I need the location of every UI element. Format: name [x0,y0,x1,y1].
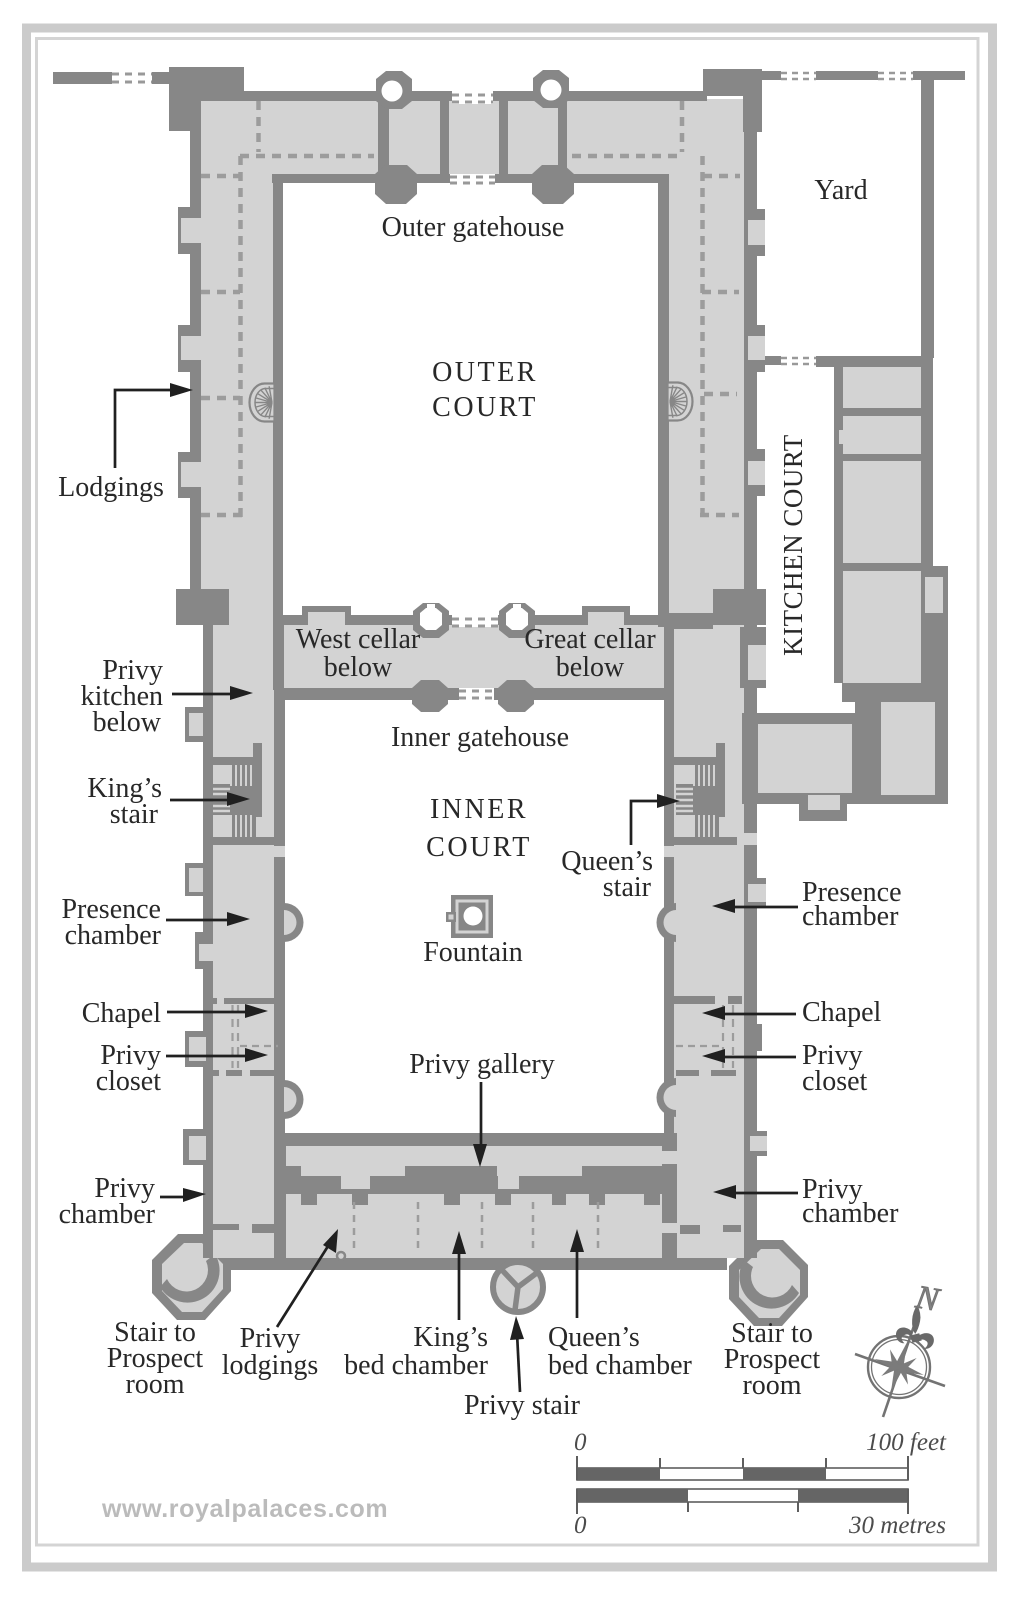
svg-text:below: below [93,707,162,738]
svg-text:lodgings: lodgings [222,1350,318,1381]
svg-text:0: 0 [574,1512,587,1539]
svg-text:West cellar: West cellar [296,624,421,655]
svg-text:stair: stair [603,872,652,903]
svg-text:room: room [742,1370,801,1401]
svg-text:Privy gallery: Privy gallery [409,1049,554,1080]
svg-text:chamber: chamber [65,920,162,951]
svg-text:OUTER: OUTER [432,357,538,388]
svg-text:Great cellar: Great cellar [524,624,656,655]
svg-text:bed chamber: bed chamber [548,1350,692,1381]
svg-text:Inner gatehouse: Inner gatehouse [391,722,569,753]
svg-text:below: below [556,652,625,683]
svg-text:closet: closet [96,1066,162,1097]
svg-text:chamber: chamber [59,1199,156,1230]
svg-text:www.royalpalaces.com: www.royalpalaces.com [101,1495,388,1523]
svg-text:Chapel: Chapel [82,998,162,1029]
svg-text:stair: stair [110,799,159,830]
svg-text:KITCHEN COURT: KITCHEN COURT [778,434,808,656]
svg-text:closet: closet [802,1066,868,1097]
svg-text:Lodgings: Lodgings [58,472,164,503]
svg-text:30 metres: 30 metres [848,1512,946,1539]
svg-text:COURT: COURT [426,832,532,863]
svg-text:100 feet: 100 feet [866,1429,947,1456]
svg-text:0: 0 [574,1429,587,1456]
svg-text:Yard: Yard [814,175,867,206]
svg-text:Chapel: Chapel [802,997,882,1028]
svg-text:Fountain: Fountain [423,937,523,968]
svg-text:COURT: COURT [432,392,538,423]
svg-text:King’s: King’s [413,1322,488,1353]
svg-text:bed chamber: bed chamber [344,1350,488,1381]
svg-text:Outer gatehouse: Outer gatehouse [382,212,565,243]
svg-text:below: below [324,652,393,683]
svg-text:chamber: chamber [802,901,899,932]
svg-text:Queen’s: Queen’s [548,1322,640,1353]
svg-text:INNER: INNER [430,794,528,825]
svg-text:room: room [125,1369,184,1400]
svg-text:chamber: chamber [802,1198,899,1229]
svg-text:Privy stair: Privy stair [464,1390,581,1421]
